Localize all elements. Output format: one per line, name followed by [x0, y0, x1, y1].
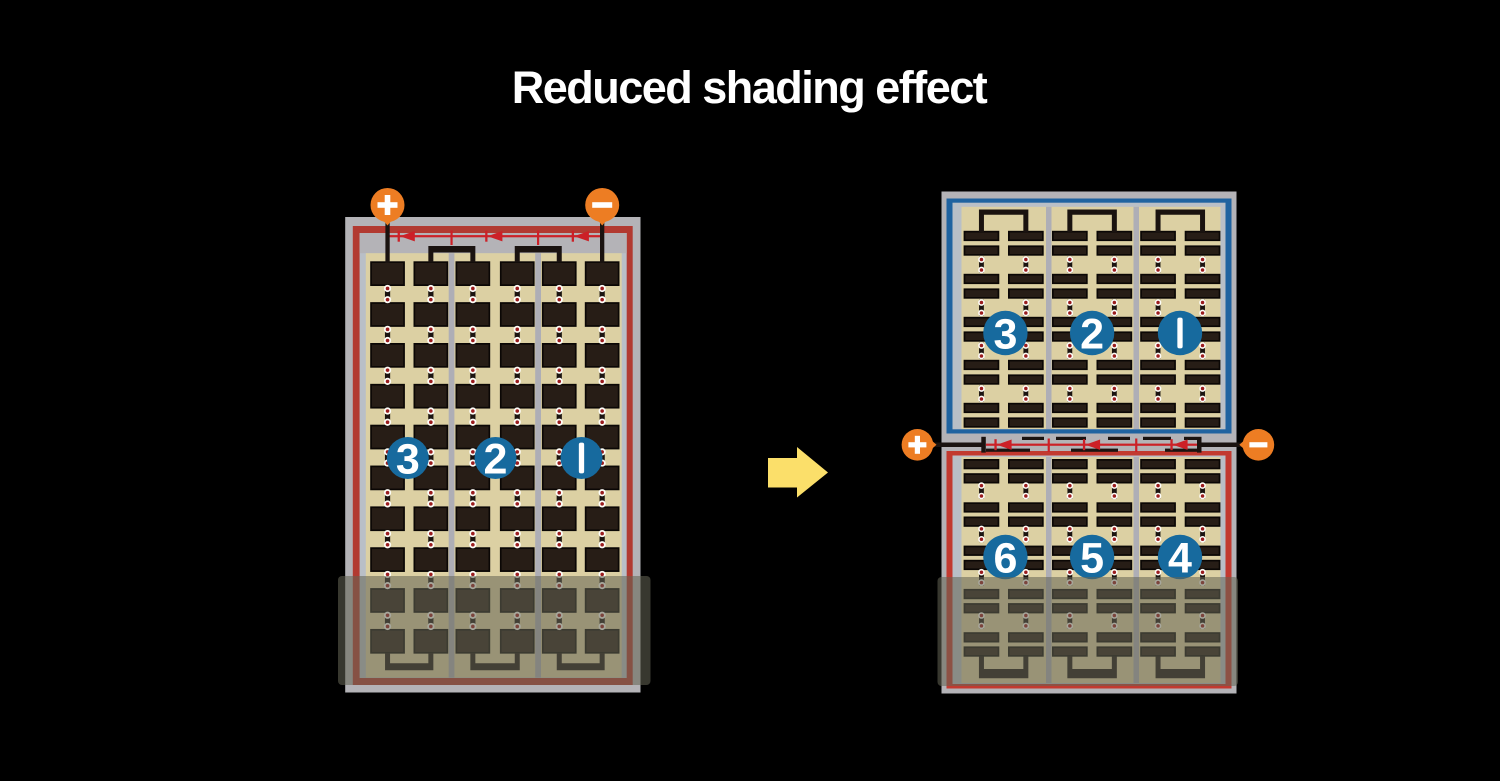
- svg-text:3: 3: [993, 310, 1017, 358]
- svg-text:2: 2: [484, 435, 508, 483]
- svg-text:6: 6: [993, 534, 1017, 582]
- svg-text:2: 2: [1080, 310, 1104, 358]
- svg-text:Reduced shading effect: Reduced shading effect: [512, 62, 988, 113]
- svg-text:3: 3: [396, 435, 420, 483]
- svg-text:4: 4: [1168, 534, 1192, 582]
- svg-text:5: 5: [1080, 534, 1104, 582]
